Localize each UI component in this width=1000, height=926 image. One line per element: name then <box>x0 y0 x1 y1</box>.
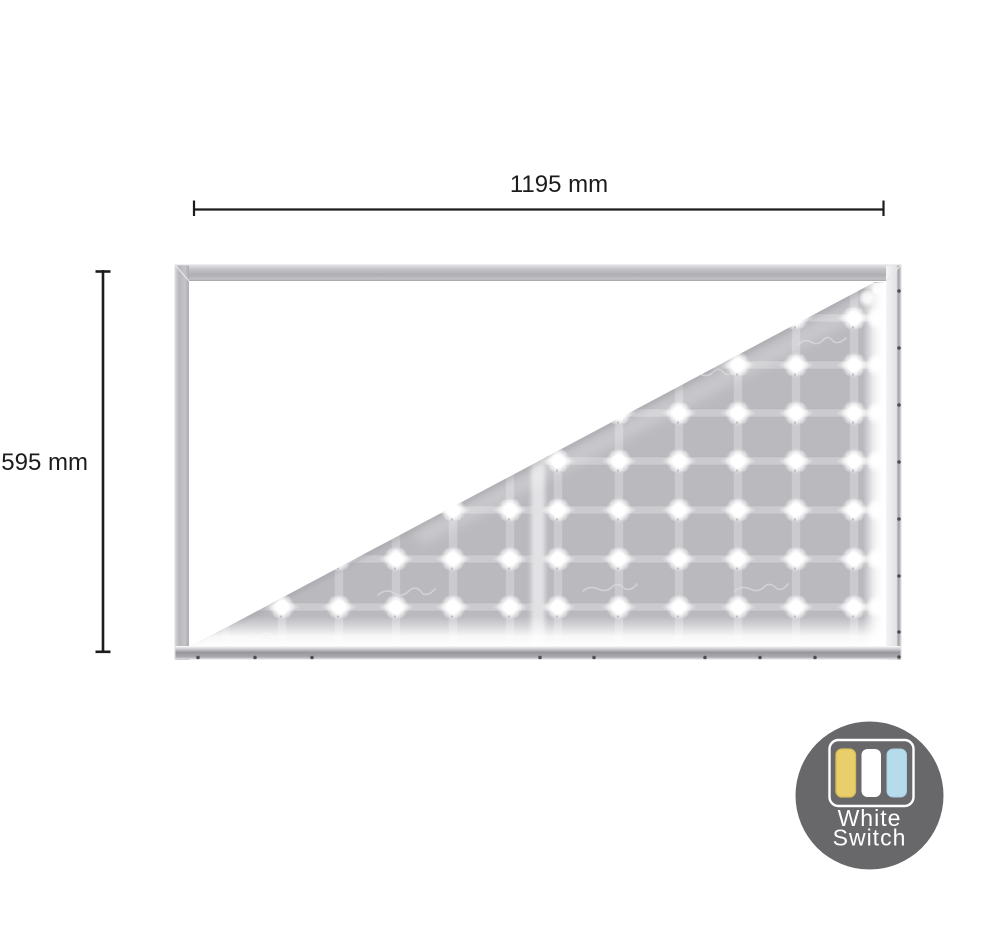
svg-text:Switch: Switch <box>833 825 907 851</box>
